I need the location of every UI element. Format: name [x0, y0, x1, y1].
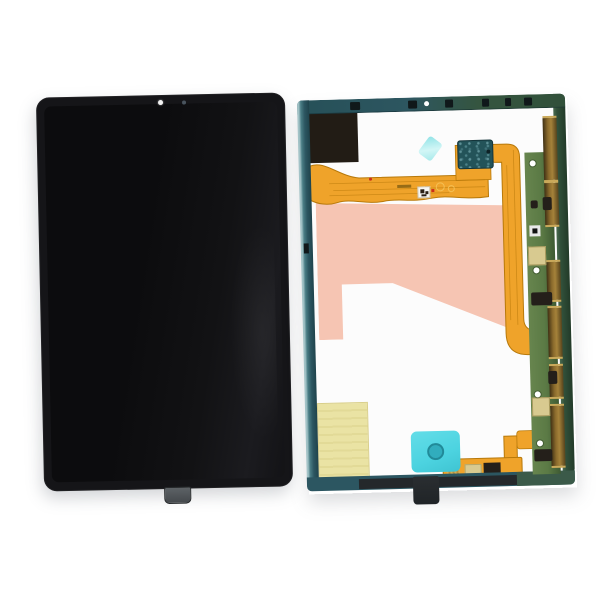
- pcb-khaki-pad: [528, 246, 546, 265]
- pcb-fiducial-marker: [529, 225, 540, 236]
- tablet-front-panel: [36, 92, 293, 491]
- pcb-screw-hole: [535, 391, 541, 397]
- button-membrane-circle: [427, 443, 444, 460]
- pcb-screw-hole: [537, 440, 543, 446]
- top-rail-notch: [350, 102, 360, 110]
- pcb-khaki-pad: [532, 397, 550, 416]
- screen-reflection: [228, 222, 279, 443]
- top-rail-notch: [482, 99, 489, 107]
- red-ink-tick: [431, 189, 434, 192]
- pcb-component-chip: [531, 200, 538, 208]
- lcd-flex-board-connector: [457, 139, 494, 169]
- pcb-component-chip: [531, 292, 552, 306]
- flex-print-marking: [397, 185, 411, 188]
- pcb-bronze-connector: [547, 306, 562, 359]
- tablet-back-panel: [297, 94, 575, 491]
- front-camera-dot: [158, 100, 163, 105]
- pcb-component-chip: [534, 449, 552, 461]
- rear-flex-connector-tab: [413, 476, 440, 505]
- top-rail-notch: [505, 98, 511, 106]
- photo-canvas: [0, 0, 600, 600]
- flex-qr-label: [417, 186, 430, 198]
- front-flex-connector-tab: [164, 486, 191, 504]
- red-ink-dot: [369, 178, 372, 181]
- top-rail-notch: [408, 100, 417, 108]
- top-rail-notch: [445, 99, 453, 107]
- cyan-button-pad: [411, 430, 461, 472]
- pcb-component-chip: [548, 371, 557, 384]
- display-glass: [44, 102, 285, 483]
- frame-camera-hole: [424, 101, 429, 106]
- top-rail-notch: [524, 97, 532, 105]
- left-rail-notch: [304, 243, 309, 253]
- pcb-bronze-connector: [542, 116, 558, 182]
- ambient-sensor-dot: [182, 101, 186, 105]
- pcb-component-chip: [543, 197, 552, 210]
